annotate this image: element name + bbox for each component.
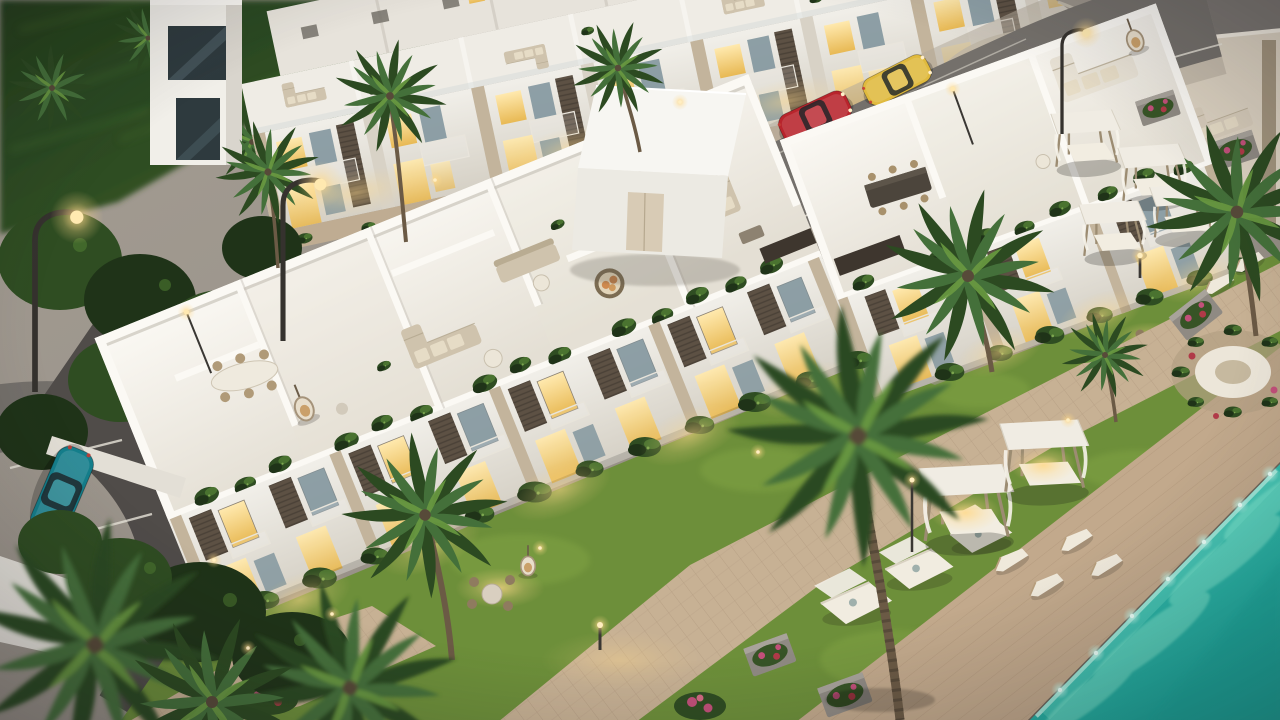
rendered-image: Aerial dusk 3D architectural rendering o… [0, 0, 1280, 720]
vignette-overlay [0, 0, 1280, 720]
scene-canvas [0, 0, 1280, 720]
